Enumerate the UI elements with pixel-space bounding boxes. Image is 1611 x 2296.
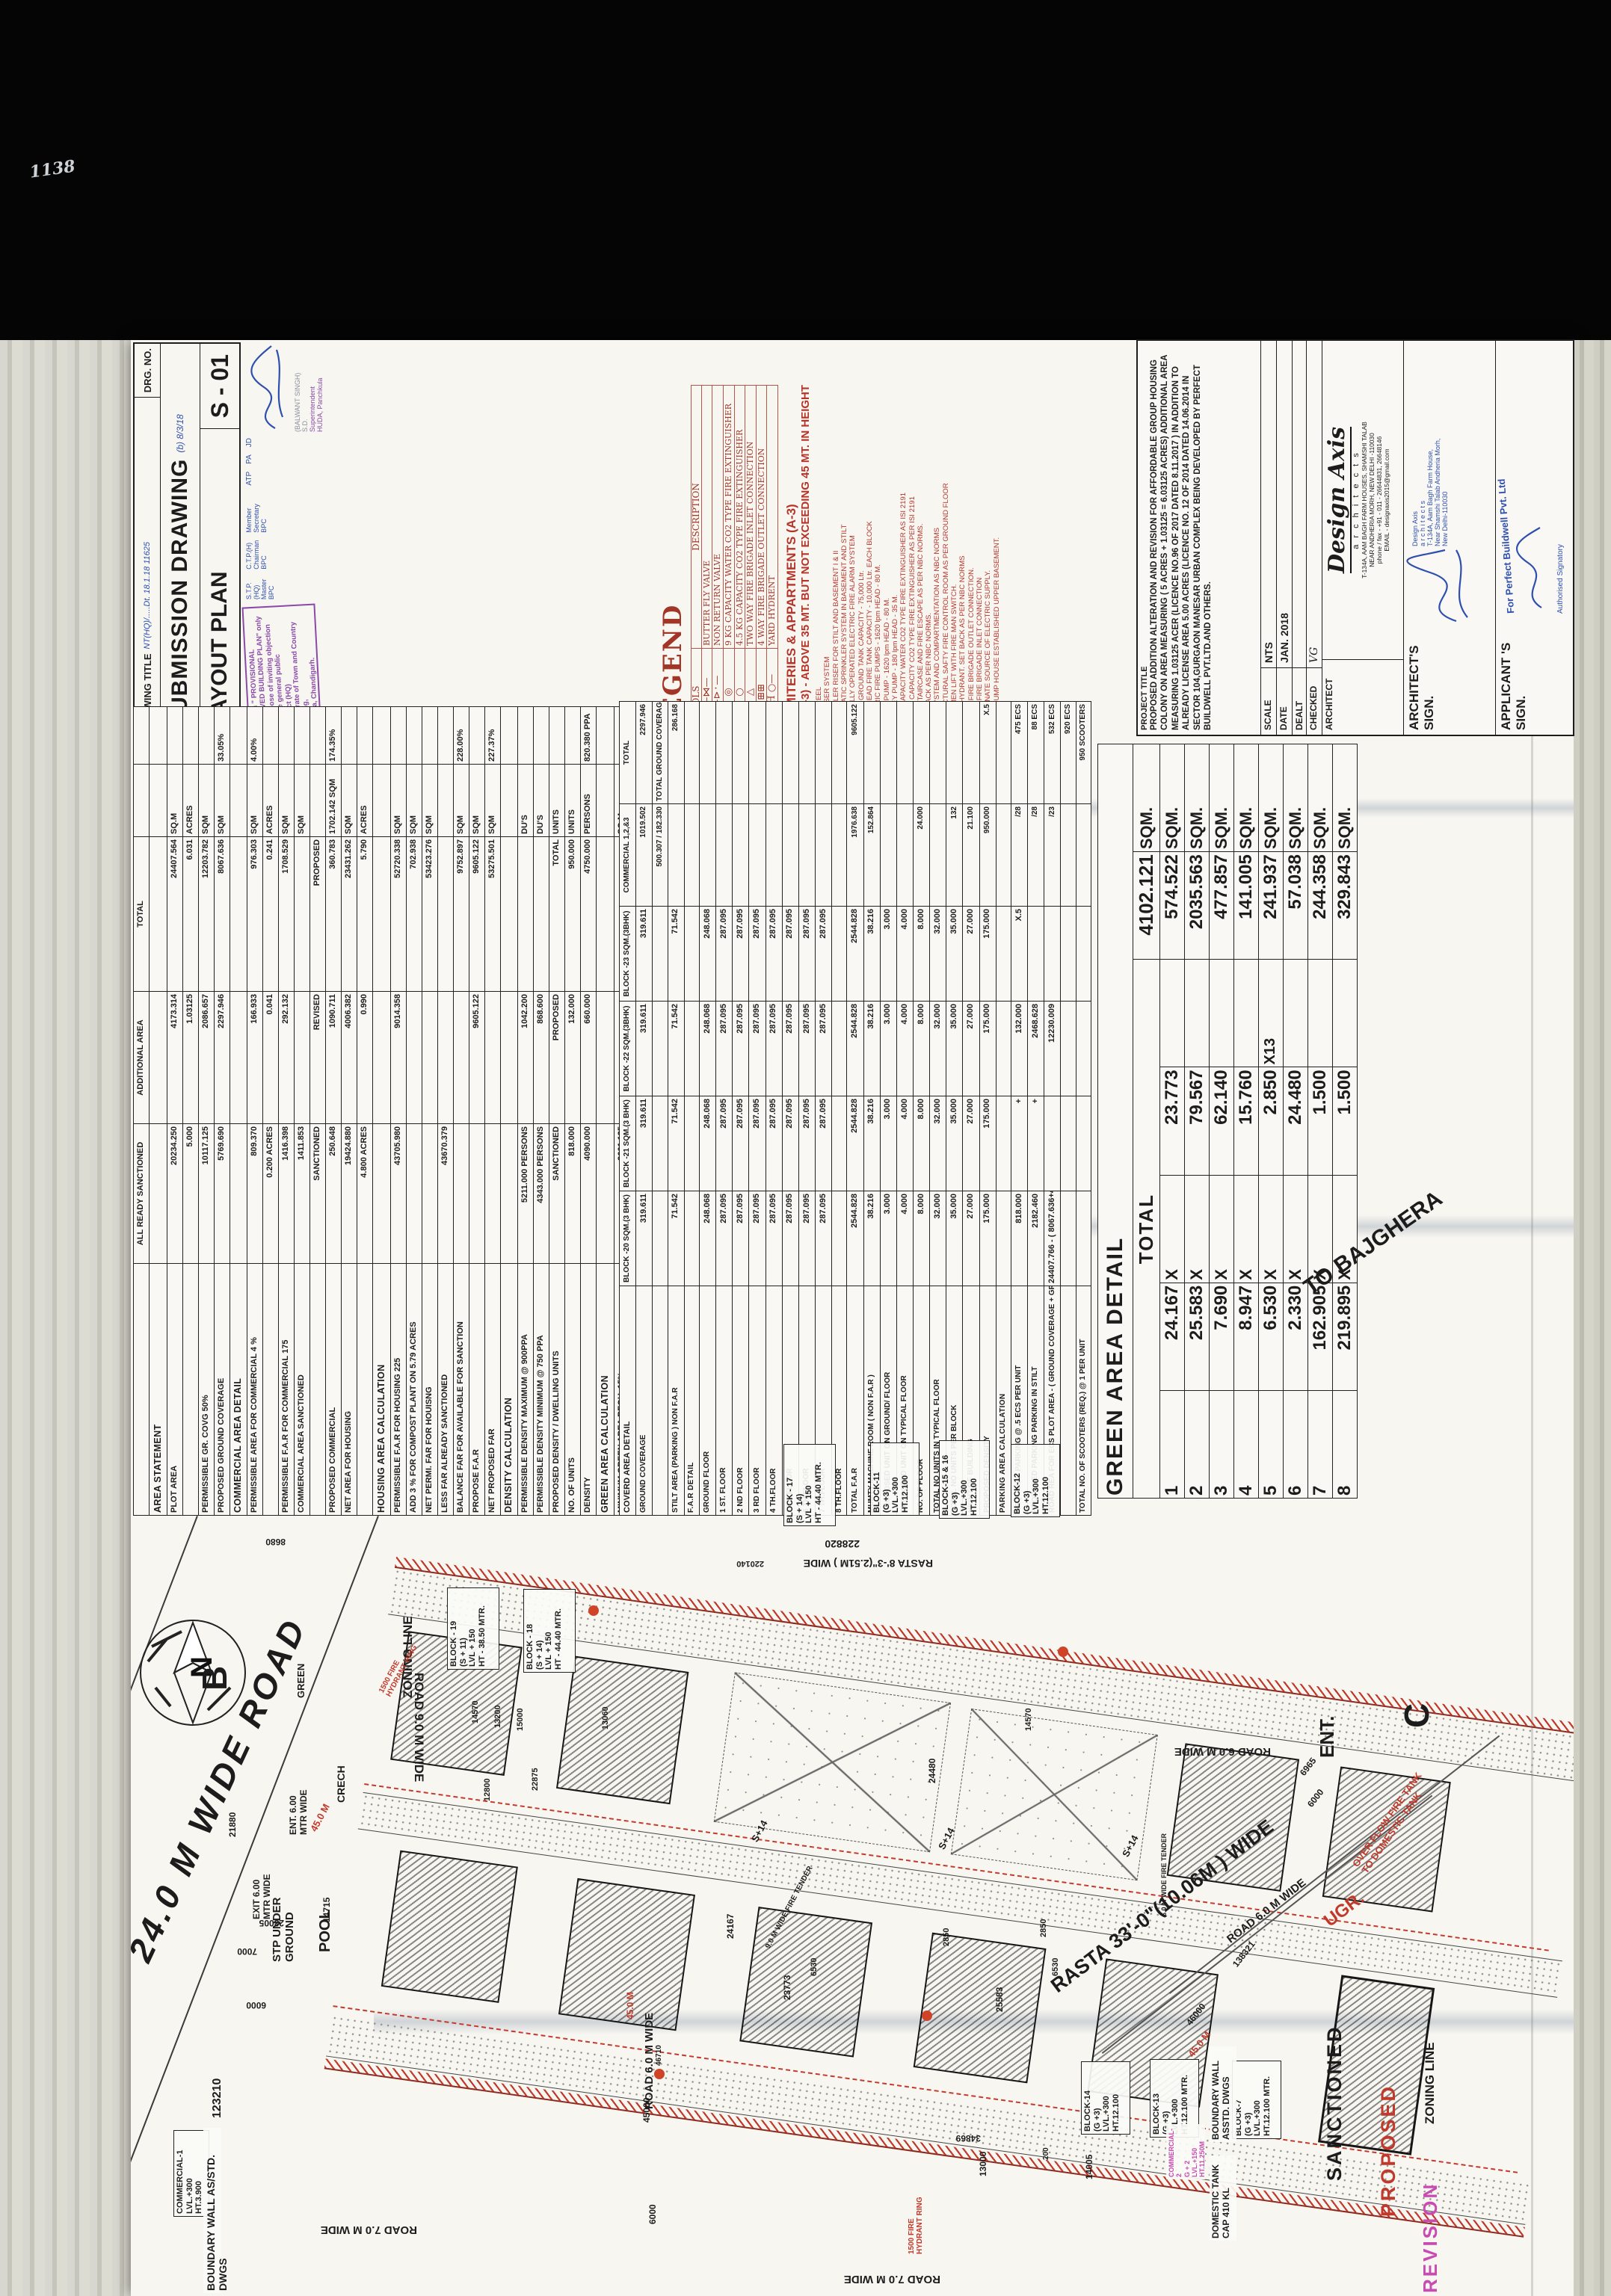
legend-block: LEGEND SYMBOLS DESCRIPTION —⋈— BUTTER FL… [658,340,1121,736]
gad-b: 15.760 [1233,1067,1258,1175]
ca-v5: 24.000 [913,804,929,907]
as-percent [342,707,357,765]
as-sanctioned [484,1124,500,1264]
gad-b: 79.567 [1184,1067,1209,1175]
ca-v1: 4.000 [896,1191,913,1286]
as-unit: SQM [453,765,469,837]
area-statement-row: LESS FAR ALREADY SANCTIONED 43670.379 [437,707,453,1516]
architect-address: T-134A, AAM BAGH FARM HOUSES, SHAMSHI TA… [1361,347,1390,653]
green-area-row: 4 8.947 X 15.760 141.005 SQM. [1233,744,1258,1499]
as-sanctioned: SANCTIONED [310,1124,326,1264]
plan-label: 2850 [942,1928,951,1946]
as-row-label: PERMISSIBLE F.A.R FOR COMMERCIAL 175 [279,1264,295,1516]
legend-note: 10- JOCKEY PUMP - 180 lpm HEAD - 35 M. [891,340,899,736]
ca-v3: 71.542 [668,1002,684,1096]
plan-label: C [1396,1703,1437,1728]
ca-col5: COMMERCIAL 1,2,&3 [620,804,636,907]
as-total: 4750.000 [581,837,597,992]
ca-v5: 500.307 / 182.330 [653,804,668,907]
ca-row-label: GROUND COVERAGE [636,1286,653,1516]
as-total: TOTAL [549,837,565,992]
ca-v3: 287.095 [716,1002,733,1096]
as-row-label [310,1264,326,1516]
ca-v3: 287.095 [782,1002,798,1096]
tower-block [381,1851,518,2003]
covered-area-row: PROPOSED DENSITY 175.000 175.000 175.000… [979,702,996,1516]
as-additional: PROPOSED [549,992,565,1124]
plan-label: 6000 [246,2000,266,2010]
plan-label: ROAD 6.0 M WIDE [643,2013,656,2109]
ca-v1: 287.095 [815,1191,831,1286]
as-row-label: LESS FAR ALREADY SANCTIONED [437,1264,453,1516]
covered-area-row: F.A.R DETAIL [684,702,699,1516]
as-sanctioned: 1416.398 [279,1124,295,1264]
plan-label: 123210 [211,2079,224,2118]
ca-v1: 2544.828 [847,1191,863,1286]
gad-a: 8.947 [1233,1283,1258,1390]
ca-row-label: TOTAL NO. OF SCOOTERS (REQ.) @ 1 PER UNI… [1076,1286,1091,1516]
legend-symbol-desc: 4.5 KG CAPACITY CO2 TYPE FIRE EXTINGUISH… [734,386,745,649]
legend-heading-part3: (PART-3) - ABOVE 35 MT. BUT NOT EXCEEDIN… [799,340,812,736]
ca-v4 [653,907,668,1002]
ca-v3: 32.000 [930,1002,946,1096]
as-unit: DU'S [518,765,534,837]
plan-label: ROAD 6.0 M WIDE [1174,1745,1271,1758]
ca-v2: 287.095 [766,1096,782,1191]
as-additional [500,992,518,1124]
legend-row: YH ○— YARD HYDRENT [767,386,778,736]
legend-row: —⋈— BUTTER FLY VALVE [701,386,712,736]
as-sanctioned: 0.200 ACRES [263,1124,279,1264]
drg-number: S - 01 [200,344,239,429]
gad-mult [1159,960,1184,1067]
area-statement-row: PERMISSIBLE AREA FOR COMMERCIAL 4 % 809.… [247,707,263,1516]
as-unit: UNITS [549,765,565,837]
ca-v1 [684,1191,699,1286]
plan-label: 46710 [655,2045,663,2066]
as-additional: 1042.200 [518,992,534,1124]
yard-hydrant-icon [588,1605,599,1616]
ca-v6 [896,702,913,804]
as-additional [437,992,453,1124]
as-unit: PERSONS [581,765,597,837]
as-row-label [263,1264,279,1516]
legend-note: 8- ELECTRIC FIRE PUMPS - 1620 lpm HEAD -… [874,340,882,736]
dealt-label: DEALT [1293,667,1307,735]
as-percent [390,707,406,765]
gad-b: 62.140 [1209,1067,1233,1175]
as-total: 0.241 [263,837,279,992]
gad-no: 6 [1283,1390,1307,1498]
as-total: 9605.122 [469,837,484,992]
as-row-label: PERMISSIBLE DENSITY MAXIMUM @ 900PPA [518,1264,534,1516]
as-sanctioned: 5211.000 PERSONS [518,1124,534,1264]
plan-block-box: BLOCK-12 (G +3) LVL.+300 HT.12.100 [1011,1444,1060,1517]
as-additional: 1.03125 [182,992,198,1124]
ca-v5: /23 [1044,804,1061,907]
ca-v1: 71.542 [668,1191,684,1286]
as-percent [167,707,182,765]
ca-v2: 287.095 [749,1096,766,1191]
ca-v3 [832,1002,847,1096]
legend-note: 2- WET RISER SYSTEM [823,340,831,736]
legend-note: 20- 2 WAY FIRE BRIGADE INLET CONNECTION [976,340,984,736]
as-sanctioned: 818.000 [565,1124,581,1264]
as-total [149,837,167,992]
as-sanctioned: 4343.000 PERSONS [534,1124,549,1264]
green-area-row: 5 6.530 X 2.850 X13 241.937 SQM. [1258,744,1283,1499]
gad-result: 574.522 [1159,852,1184,960]
architect-sub: a r c h i t e c t s [1352,347,1361,653]
ca-v4 [1044,907,1061,1002]
ca-v5 [716,804,733,907]
ca-v6 [733,702,749,804]
as-unit: SQM [198,765,214,837]
plan-label: GREEN [295,1664,307,1698]
ca-v1 [832,1191,847,1286]
tower-block [556,1656,689,1805]
as-unit: SQM [406,765,422,837]
area-statement-row: AREA STATEMENT [149,707,167,1516]
ca-v4: 27.000 [963,907,979,1002]
as-total: 24407.564 [167,837,182,992]
area-statement-row: NET PROPOSED FAR 53275.501 SQM 227.37% [484,707,500,1516]
ca-v6: 2297.946 [636,702,653,804]
ca-v5 [733,804,749,907]
plan-label: RASTA 8'-3"(2.51M ) WIDE [804,1558,933,1570]
as-sanctioned: 4090.000 [581,1124,597,1264]
ca-v1: 287.095 [716,1191,733,1286]
ca-v3: 12230.009 [1044,1002,1061,1096]
as-sanctioned: 19424.880 [342,1124,357,1264]
plan-label: 200 [1042,2147,1050,2160]
covered-area-table: COVERD AREA DETAIL BLOCK -20 SQM.(3 BHK)… [619,738,1093,1516]
gad-x: X [1184,1175,1209,1283]
covered-area-row: TOTAL NO UNITS PER BLOCK 35.000 35.000 3… [946,702,963,1516]
gad-total-label: TOTAL [1133,960,1160,1499]
ca-title: COVERD AREA DETAIL [620,1286,636,1516]
ca-v1: 175.000 [979,1191,996,1286]
as-additional [149,992,167,1124]
legend-description-header: DESCRIPTION [691,386,702,649]
as-total: 6.031 [182,837,198,992]
ca-row-label: GROUND FLOOR [699,1286,715,1516]
stamp-role: ATP [245,472,318,486]
plan-block-box: BLOCK - 19 (S + 11) LVL + 150 HT - 38.50… [447,1587,499,1670]
ca-v2 [1076,1096,1091,1191]
gad-mult: X13 [1258,960,1283,1067]
as-sanctioned [373,1124,391,1264]
covered-area-row: ROAD REA FOR ECS PLOT AREA - ( GROUND CO… [1044,702,1061,1516]
ca-v2: 248.068 [699,1096,715,1191]
as-additional: 2086.657 [198,992,214,1124]
as-unit: SQM [295,765,310,837]
as-unit: SQM [469,765,484,837]
as-total: 950.000 [565,837,581,992]
plan-label: 45.0 M [625,1992,635,2019]
ca-v4: 248.068 [699,907,715,1002]
ca-v2: 287.095 [782,1096,798,1191]
yard-hydrant-icon [654,2069,665,2079]
gad-result: 329.843 [1332,852,1357,960]
plan-label: REVISION [1419,2182,1442,2293]
ca-v6 [815,702,831,804]
as-sanctioned: 5769.690 [214,1124,230,1264]
ca-v4 [1061,907,1076,1002]
as-percent: 4.00% [247,707,263,765]
plan-label: CRECH [335,1765,347,1803]
as-total: 53423.276 [422,837,437,992]
gad-a: 7.690 [1209,1283,1233,1390]
as-percent [182,707,198,765]
as-additional [422,992,437,1124]
as-additional: 9014.358 [390,992,406,1124]
ca-row-label: TOTAL F.A.R [847,1286,863,1516]
legend-note: 15- P.A. SYSTEM AND COMPARTMENTATION AS … [933,340,941,736]
as-unit [500,765,518,837]
as-col1: ALL READY SANCTIONED [134,1124,150,1264]
project-title-text: PROPOSED ADDITION ALTERATION AND REVISIO… [1149,345,1213,730]
ca-v5 [1076,804,1091,907]
covered-area-row: 920 ECS [1061,702,1076,1516]
ca-v2: 8.000 [913,1096,929,1191]
as-sanctioned: 1411.853 [295,1124,310,1264]
ca-v4: 287.095 [798,907,815,1002]
gad-result: 2035.563 [1184,852,1209,960]
ca-v5 [798,804,815,907]
area-statement-row: BALANCE FAR FOR AVAILABLE FOR SANCTION 9… [453,707,469,1516]
as-sanctioned: 43670.379 [437,1124,453,1264]
as-total [295,837,310,992]
yard-hydrant-icon [1058,1647,1068,1657]
as-row-label: PROPOSED GROUND COVERAGE [214,1264,230,1516]
ca-v6 [913,702,929,804]
covered-area-row: STILT AREA (PARKING ) NON F.A.R 71.542 7… [668,702,684,1516]
ca-v2 [832,1096,847,1191]
plan-label: ROAD 7.0 M WIDE [844,2273,940,2286]
ca-v4: 4.000 [896,907,913,1002]
as-unit: UNITS [565,765,581,837]
ca-v2: 3.000 [880,1096,896,1191]
area-statement-row: PROPOSED COMMERCIAL 250.648 1090.711 360… [326,707,342,1516]
area-statement-row: 0.200 ACRES 0.041 0.241 ACRES [263,707,279,1516]
plan-label: 22875 [531,1768,540,1791]
plan-label: 6000 [647,2204,658,2224]
ca-v4: 287.095 [782,907,798,1002]
as-sanctioned: 5.000 [182,1124,198,1264]
area-statement-row: PERMISSIBLE F.A.R FOR HOUSING 225 43705.… [390,707,406,1516]
green-area-row: 8 219.895 X 1.500 329.843 SQM. [1332,744,1357,1499]
legend-symbol-desc: 4 WAY FIRE BRIGADE OUTLET CONNECTION [756,386,767,649]
as-additional: 166.933 [247,992,263,1124]
architect-label: ARCHITECT [1322,659,1403,735]
ca-v3: 4.000 [896,1002,913,1096]
as-unit: SQM [342,765,357,837]
area-statement-row: GREEN AREA CALCULATION [597,707,614,1516]
green-area-row: 1 24.167 X 23.773 574.522 SQM. [1159,744,1184,1499]
scanner-black-band [0,0,1611,340]
as-total: 8067.636 [214,837,230,992]
ca-row-label: STILT AREA (PARKING ) NON F.A.R [668,1286,684,1516]
gad-result: 241.937 [1258,852,1283,960]
ca-v3 [996,1002,1011,1096]
as-row-label: COMMERCIAL AREA DETAIL [230,1264,247,1516]
plan-label: 6530 [810,1958,819,1976]
as-row-label: DENSITY CALCULATION [500,1264,518,1516]
legend-note: 4- AUTOMATIC SPRINKLER SYSTEM IN BASEMEN… [840,340,848,736]
ca-v6 [699,702,715,804]
as-unit: SQM [279,765,295,837]
gad-unit: SQM. [1307,744,1332,852]
plan-label: ROAD 7.0 M WIDE [321,2224,417,2236]
ca-v5 [880,804,896,907]
plan-label: EXIT 6.00 MTR WIDE [251,1874,272,1919]
ca-v2: + [1028,1096,1044,1191]
as-additional: REVISED [310,992,326,1124]
as-row-label [182,1264,198,1516]
ca-v1: 319.611 [636,1191,653,1286]
gad-result: 244.358 [1307,852,1332,960]
legend-note: 11- 9 KG CAPACITY WATER CO2 TYPE FIRE EX… [899,340,908,736]
as-total [500,837,518,992]
as-sanctioned: 4.800 ACRES [357,1124,373,1264]
area-statement-row: PLOT AREA 20234.250 4173.314 24407.564 S… [167,707,182,1516]
covered-area-row: MUMTY MACHINE ROOM ( NON F.A.R ) 38.216 … [863,702,880,1516]
submission-drawing-title: SUBMISSION DRAWING [167,453,193,735]
gad-total-value: 4102.121 [1133,852,1160,960]
architect-sign-label: ARCHITECT'S SIGN. [1404,629,1495,735]
covered-area-row: REQUIRED PARKING @ .5 ECS PER UNIT 818.0… [1011,702,1027,1516]
plan-label: B [194,1666,235,1691]
ca-v3: 319.611 [636,1002,653,1096]
legend-note: 14- SET BACK AS PER NBC NORMS. [925,340,933,736]
as-total [518,837,534,992]
ca-v4: 2544.828 [847,907,863,1002]
ca-v1: 3.000 [880,1191,896,1286]
ca-col1: BLOCK -20 SQM.(3 BHK) [620,1191,636,1286]
area-statement-row: COMMERCIAL AREA SANCTIONED 1411.853 SQM [295,707,310,1516]
ca-v2: 287.095 [716,1096,733,1191]
as-unit [230,765,247,837]
covered-area-row: TOTAL NO UNITS IN TYPICAL FLOOR 32.000 3… [930,702,946,1516]
ca-v1: 287.095 [766,1191,782,1286]
covered-area-row: 5 TH.FLOOR 287.095 287.095 287.095 287.0… [782,702,798,1516]
as-percent [500,707,518,765]
green-area-row: 6 2.330 X 24.480 57.038 SQM. [1283,744,1307,1499]
ca-v6 [684,702,699,804]
legend-note: 9- DIESEL PUMP - 1620 lpm HEAD - 80 M. [883,340,891,736]
ca-v2: 287.095 [815,1096,831,1191]
plan-label: PROPOSED [1377,2084,1400,2217]
legend-note: 6- UNDER GROUND TANK CAPACITY - 75,000 L… [857,340,866,736]
ca-v2: 319.611 [636,1096,653,1191]
ca-v5: 1976.638 [847,804,863,907]
as-additional: 0.990 [357,992,373,1124]
gad-no: 7 [1307,1390,1332,1498]
ca-v6 [963,702,979,804]
signature-squiggle-icon [245,342,290,432]
ca-v3: 287.095 [749,1002,766,1096]
area-statement-row: NET AREA FOR HOUSING 19424.880 4006.382 … [342,707,357,1516]
as-sanctioned [500,1124,518,1264]
gad-mult [1233,960,1258,1067]
area-statement-row: 4.800 ACRES 0.990 5.790 ACRES [357,707,373,1516]
covered-area-row: PROPOSED UNIT ON GROUND/ FLOOR 3.000 3.0… [880,702,896,1516]
ca-v5 [749,804,766,907]
plan-block-box: BOUNDARY WALL AS/STD. DWGS [203,2128,221,2293]
gad-unit: SQM. [1159,744,1184,852]
ca-v4: 35.000 [946,907,963,1002]
plan-block-box: BOUNDARY WALL ASSTD. DWGS [1210,2046,1236,2142]
as-unit: SQM [247,765,263,837]
plan-block-box: BLOCK-14 (G +3) LVL.+300 HT.12.100 [1081,2061,1130,2135]
ca-v2: 287.095 [798,1096,815,1191]
as-percent [357,707,373,765]
as-percent [437,707,453,765]
ca-v6: 920 ECS [1061,702,1076,804]
ca-col4: BLOCK -23 SQM.(3BHK) [620,907,636,1002]
title-block: PROJECT TITLE PROPOSED ADDITION ALTERATI… [1136,339,1574,736]
plan-label: STP UNDER GROUND [271,1898,296,1962]
stamp-superintendent: Superintendent HUDA, Panchkula [309,342,324,432]
ca-v5 [896,804,913,907]
plan-label: 24167 [725,1914,736,1939]
stamp-role: PA [245,454,318,464]
plan-label: ENT. [1316,1716,1339,1758]
ca-v4 [832,907,847,1002]
plan-label: ROAD 9.0 M WIDE [411,1673,426,1782]
ca-col2: BLOCK -21 SQM.(3 BHK) [620,1096,636,1191]
as-row-label: ADD 3 % FOR COMPOST PLANT ON 5.79 ACRES [406,1264,422,1516]
ca-v1: 38.216 [863,1191,880,1286]
gad-a: 2.330 [1283,1283,1307,1390]
gad-x: X [1159,1175,1184,1283]
legend-note: 3- SPRINKLER RISER FOR STILT AND BASEMEN… [832,340,840,736]
legend-note: 21- ALTERNATE SOURCE OF ELECTRIC SUPPLY. [984,340,992,736]
as-sanctioned [469,1124,484,1264]
as-total [373,837,391,992]
gad-unit: SQM. [1332,744,1357,852]
ca-v3: 35.000 [946,1002,963,1096]
area-statement-row: PERMISSIBLE DENSITY MAXIMUM @ 900PPA 521… [518,707,534,1516]
area-statement-row: PERMISSIBLE GR. COVG 50% 10117.125 2086.… [198,707,214,1516]
as-unit: SQM [484,765,500,837]
ca-v3: 287.095 [815,1002,831,1096]
as-additional: 292.132 [279,992,295,1124]
covered-area-row: 6 TH.FLOOR 287.095 287.095 287.095 287.0… [798,702,815,1516]
ca-v4: 8.000 [913,907,929,1002]
gad-no: 2 [1184,1390,1209,1498]
as-additional: 868.600 [534,992,549,1124]
area-statement-row: DENSITY CALCULATION [500,707,518,1516]
legend-note: 19- 4 WAY FIRE BRIGADE OUTLET CONNECTION… [967,340,976,736]
dealt-value [1293,341,1307,667]
as-percent [422,707,437,765]
architect-name: Design Axis [1324,427,1352,573]
ca-v3: 2468.628 [1028,1002,1044,1096]
legend-row: △ TWO WAY FIRE BRIGADE INLET CONNECTION [745,386,757,736]
green-area-row: 7 162.905 X 1.500 244.358 SQM. [1307,744,1332,1499]
as-unit: ACRES [357,765,373,837]
ca-v4: 38.216 [863,907,880,1002]
ca-v1: 27.000 [963,1191,979,1286]
area-statement-row: PERMISSIBLE F.A.R FOR COMMERCIAL 175 141… [279,707,295,1516]
ca-v2 [653,1096,668,1191]
gad-result: 477.857 [1209,852,1233,960]
as-total: 976.303 [247,837,263,992]
as-col0 [134,1264,150,1516]
ca-v3 [1076,1002,1091,1096]
